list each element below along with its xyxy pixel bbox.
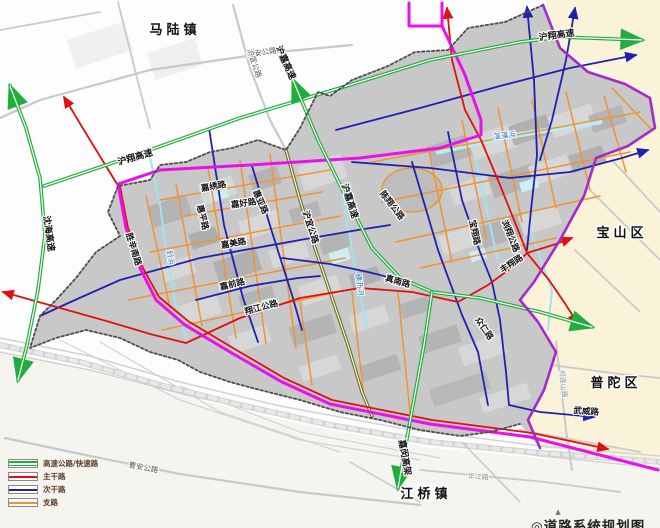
road-label: 武威路 bbox=[573, 405, 600, 418]
map-caption: ◎道路系统规划图 bbox=[531, 515, 645, 528]
road-huyi-road-north bbox=[233, 5, 286, 150]
road-malu-grid-2 bbox=[118, 2, 150, 128]
legend-swatch-red bbox=[8, 472, 38, 481]
region-label: 普陀区 bbox=[590, 375, 641, 391]
legend-item: 支路 bbox=[8, 496, 126, 509]
city-block bbox=[67, 21, 133, 68]
legend-item: 高速公路/快速路 bbox=[8, 457, 126, 470]
road-malu-grid-1 bbox=[0, 12, 100, 30]
region-label: 江桥镇 bbox=[400, 486, 451, 502]
city-block bbox=[147, 38, 203, 80]
legend-swatch-blue bbox=[8, 485, 38, 494]
legend-label: 高速公路/快速路 bbox=[43, 458, 98, 469]
road-magenta-staple bbox=[409, 3, 442, 26]
road-system-planning-map[interactable]: 马陆镇宝山区普陀区江桥镇沪翔高速沪翔高速沪嘉高速沪嘉高速沈海高速嘉闵高架宝安公路… bbox=[0, 0, 660, 528]
legend-swatch-green bbox=[8, 459, 38, 468]
region-label: 宝山区 bbox=[596, 225, 647, 241]
road-label: 沪翔高速 bbox=[116, 146, 154, 167]
legend-item: 主干路 bbox=[8, 470, 126, 483]
legend-item: 次干路 bbox=[8, 483, 126, 496]
road-label: 华江路 bbox=[467, 471, 489, 481]
legend-label: 次干路 bbox=[43, 484, 66, 495]
legend-label: 支路 bbox=[43, 497, 58, 508]
map-legend: 高速公路/快速路主干路次干路支路 bbox=[8, 457, 126, 509]
region-label: 马陆镇 bbox=[149, 22, 200, 38]
legend-swatch-orange bbox=[8, 498, 38, 507]
map-canvas[interactable]: 马陆镇宝山区普陀区江桥镇沪翔高速沪翔高速沪嘉高速沪嘉高速沈海高速嘉闵高架宝安公路… bbox=[0, 0, 660, 528]
legend-label: 主干路 bbox=[43, 471, 66, 482]
